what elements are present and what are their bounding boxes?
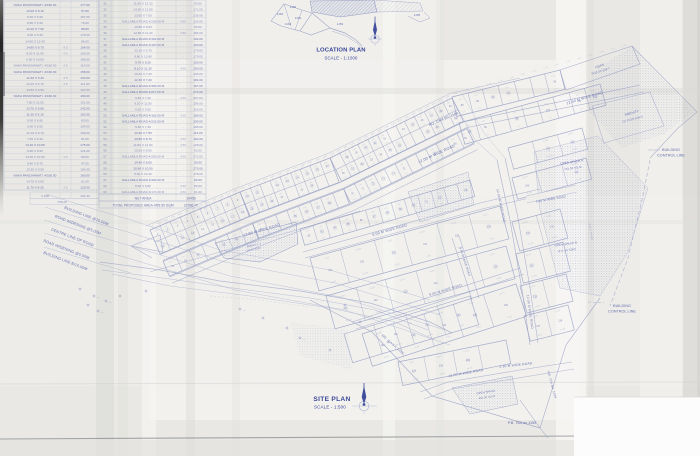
svg-text:8.90 X 6.80: 8.90 X 6.80 (135, 184, 151, 188)
svg-text:-: - (183, 43, 184, 47)
svg-text:124.00: 124.00 (193, 19, 203, 23)
svg-text:-: - (65, 3, 66, 7)
svg-text:103.00: 103.00 (80, 76, 90, 80)
svg-text:102: 102 (577, 100, 582, 103)
svg-text:54: 54 (103, 137, 107, 141)
svg-text:290.00: 290.00 (193, 119, 203, 123)
svg-text:49: 49 (103, 108, 107, 112)
svg-text:4.5: 4.5 (63, 45, 68, 49)
svg-text:13.40 X 7.50: 13.40 X 7.50 (134, 131, 152, 135)
svg-text:-: - (65, 113, 66, 117)
svg-text:LOCATION PLAN: LOCATION PLAN (316, 48, 365, 54)
svg-text:-: - (183, 90, 184, 94)
svg-text:-: - (65, 106, 66, 110)
svg-text:-: - (183, 172, 184, 176)
svg-text:-: - (183, 160, 184, 164)
svg-text:9.80 X 12.80: 9.80 X 12.80 (134, 55, 152, 59)
svg-text:175.00: 175.00 (80, 143, 90, 147)
svg-text:TOTAL PROPOSED AREA 4/59.50 SQ: TOTAL PROPOSED AREA 4/59.50 SQM (112, 204, 174, 208)
svg-text:NET AREA: NET AREA (135, 197, 152, 201)
svg-text:50: 50 (103, 113, 107, 117)
svg-text:47: 47 (103, 96, 107, 100)
svg-text:121.00: 121.00 (80, 100, 90, 104)
svg-text:-: - (65, 9, 66, 13)
svg-text:88.00: 88.00 (81, 27, 89, 31)
svg-text:171.00: 171.00 (193, 8, 203, 12)
svg-text:128.00: 128.00 (193, 143, 203, 147)
svg-text:114.00: 114.00 (193, 131, 203, 135)
svg-text:44: 44 (103, 78, 107, 82)
svg-text:188.00: 188.00 (80, 58, 90, 62)
svg-text:19456: 19456 (186, 197, 196, 201)
svg-text:196.00: 196.00 (193, 102, 203, 106)
svg-text:-: - (183, 149, 184, 153)
svg-text:126: 126 (504, 304, 509, 307)
svg-text:250.00: 250.00 (193, 66, 203, 70)
svg-text:13.80 X 8.70: 13.80 X 8.70 (134, 137, 152, 141)
svg-text:12.30 X 7.20: 12.30 X 7.20 (134, 78, 152, 82)
svg-text:89.00: 89.00 (81, 155, 89, 159)
svg-text:38: 38 (103, 43, 107, 47)
svg-text:6.20 X 11.50: 6.20 X 11.50 (26, 52, 44, 56)
svg-text:GALLAMLA ROAD 4/217.00 M: GALLAMLA ROAD 4/217.00 M (122, 90, 165, 94)
svg-text:-: - (183, 25, 184, 29)
svg-text:61.00: 61.00 (81, 180, 89, 184)
svg-text:119: 119 (394, 333, 398, 336)
svg-text:35: 35 (103, 25, 107, 29)
svg-text:1164: 1164 (295, 16, 302, 20)
svg-text:4.50: 4.50 (180, 113, 186, 117)
svg-text:12.20 X 6.70: 12.20 X 6.70 (26, 82, 44, 86)
svg-text:137: 137 (536, 325, 541, 328)
svg-text:100: 100 (546, 109, 551, 112)
svg-text:12.10 X 5.70: 12.10 X 5.70 (134, 49, 152, 53)
svg-text:32: 32 (103, 8, 107, 12)
svg-text:8.80 X 8.70: 8.80 X 8.70 (27, 161, 43, 165)
svg-text:114: 114 (434, 282, 438, 285)
svg-text:9.20 X 5.60: 9.20 X 5.60 (135, 108, 151, 112)
svg-text:9.20 X 11.80: 9.20 X 11.80 (134, 102, 152, 106)
svg-text:52: 52 (103, 125, 107, 129)
svg-text:65.00: 65.00 (194, 25, 202, 29)
svg-text:45: 45 (103, 84, 107, 88)
svg-text:-: - (183, 166, 184, 170)
svg-text:11.60 X 12.10: 11.60 X 12.10 (133, 2, 152, 6)
svg-text:11.70 X 8.20: 11.70 X 8.20 (26, 186, 44, 190)
svg-text:167.00: 167.00 (193, 84, 203, 88)
svg-text:4.50: 4.50 (180, 143, 186, 147)
svg-text:-: - (183, 102, 184, 106)
svg-text:4.50: 4.50 (180, 184, 186, 188)
svg-text:4.5: 4.5 (63, 186, 68, 190)
svg-text:GALLAMLA ROAD 4/400.00 M: GALLAMLA ROAD 4/400.00 M (122, 178, 165, 182)
svg-text:160.00: 160.00 (80, 174, 90, 178)
svg-text:63.00: 63.00 (194, 149, 202, 153)
svg-text:-: - (65, 27, 66, 31)
svg-text:159.00: 159.00 (80, 131, 90, 135)
svg-text:SCALE - 1:1000: SCALE - 1:1000 (324, 56, 358, 61)
svg-text:5.30 X 7.40: 5.30 X 7.40 (135, 125, 151, 129)
svg-text:187.00: 187.00 (80, 15, 90, 19)
svg-text:CONTROL LINE: CONTROL LINE (657, 154, 685, 158)
svg-text:48: 48 (103, 102, 107, 106)
svg-text:150.00: 150.00 (193, 61, 203, 65)
svg-text:4.5: 4.5 (63, 64, 68, 68)
svg-text:BUILDING: BUILDING (662, 148, 680, 152)
svg-text:119.00: 119.00 (80, 64, 90, 68)
svg-text:179.00: 179.00 (193, 55, 203, 59)
svg-text:108: 108 (455, 234, 460, 237)
svg-text:-: - (183, 108, 184, 112)
svg-text:39: 39 (103, 49, 107, 53)
svg-text:190.00: 190.00 (80, 94, 90, 98)
svg-text:-: - (183, 178, 184, 182)
svg-text:-: - (65, 125, 66, 129)
svg-text:46: 46 (103, 90, 107, 94)
svg-text:6.80 X 9.50: 6.80 X 9.50 (27, 149, 43, 153)
svg-text:267.00: 267.00 (193, 96, 203, 100)
svg-text:-: - (65, 58, 66, 62)
svg-text:60.00: 60.00 (194, 178, 202, 182)
svg-text:12.80 X 11.20: 12.80 X 11.20 (133, 31, 152, 35)
svg-text:140: 140 (525, 184, 530, 187)
svg-text:736.20: 736.20 (57, 200, 67, 204)
svg-text:-: - (65, 161, 66, 165)
svg-text:-: - (183, 119, 184, 123)
svg-text:13.20 X 10.80: 13.20 X 10.80 (25, 143, 45, 147)
svg-text:8.80 X 5.20: 8.80 X 5.20 (27, 21, 43, 25)
svg-text:-: - (65, 174, 66, 178)
svg-text:-: - (183, 8, 184, 12)
svg-text:106.00: 106.00 (193, 72, 203, 76)
svg-text:-: - (65, 149, 66, 153)
svg-text:132: 132 (550, 226, 555, 229)
svg-text:8.10 X 11.30: 8.10 X 11.30 (134, 66, 152, 70)
svg-text:105: 105 (360, 260, 365, 263)
svg-text:177.00: 177.00 (80, 3, 90, 7)
svg-text:-: - (65, 131, 66, 135)
svg-text:-: - (65, 21, 66, 25)
svg-text:-: - (183, 72, 184, 76)
svg-text:5.60 X 10.10: 5.60 X 10.10 (134, 172, 152, 176)
svg-text:-: - (65, 180, 66, 184)
svg-text:4.50: 4.50 (180, 66, 186, 70)
svg-text:152.00: 152.00 (80, 113, 90, 117)
svg-text:158.00: 158.00 (80, 70, 90, 74)
svg-text:11.80 X 12.60: 11.80 X 12.60 (133, 143, 152, 147)
svg-text:NAKA PANCHAWATI. 4/160.00: NAKA PANCHAWATI. 4/160.00 (14, 94, 57, 98)
svg-text:SCALE - 1:500: SCALE - 1:500 (314, 405, 346, 410)
svg-text:10.80 X 10.50: 10.80 X 10.50 (133, 166, 153, 170)
svg-text:-: - (183, 125, 184, 129)
svg-text:165.00: 165.00 (80, 52, 90, 56)
svg-text:4.5: 4.5 (63, 155, 68, 159)
svg-text:154.00: 154.00 (80, 167, 90, 171)
svg-text:GALLAMLA ROAD 4/162.00 M: GALLAMLA ROAD 4/162.00 M (122, 113, 165, 117)
svg-text:57.00: 57.00 (81, 9, 89, 13)
svg-text:GALLAMLA ROAD 4/197.00 M: GALLAMLA ROAD 4/197.00 M (122, 43, 165, 47)
svg-text:12.30 X 9.90: 12.30 X 9.90 (26, 167, 44, 171)
svg-text:104: 104 (328, 269, 333, 272)
svg-text:14.50 X 12.40: 14.50 X 12.40 (25, 39, 45, 43)
svg-text:-: - (65, 88, 66, 92)
svg-text:-: - (65, 137, 66, 141)
svg-text:12.30 X 5.40: 12.30 X 5.40 (26, 76, 44, 80)
svg-text:10.20 X 8.60: 10.20 X 8.60 (134, 149, 152, 153)
svg-text:111.00: 111.00 (80, 82, 89, 86)
svg-text:137.00: 137.00 (80, 88, 90, 92)
svg-text:81.00: 81.00 (81, 137, 89, 141)
svg-text:1159: 1159 (337, 22, 344, 26)
svg-text:59: 59 (103, 166, 107, 170)
svg-text:-: - (65, 15, 66, 19)
svg-text:90.00: 90.00 (194, 160, 202, 164)
svg-text:57: 57 (103, 155, 107, 159)
svg-text:275.00: 275.00 (193, 166, 203, 170)
svg-text:14.40 X 8.00: 14.40 X 8.00 (134, 160, 152, 164)
svg-text:61.00: 61.00 (194, 190, 202, 194)
svg-text:-: - (65, 70, 66, 74)
svg-text:62: 62 (103, 184, 107, 188)
svg-text:GALLAMLA ROAD 4/295.00 M: GALLAMLA ROAD 4/295.00 M (122, 155, 165, 159)
svg-text:5.00 X 6.90: 5.00 X 6.90 (27, 119, 43, 123)
svg-text:164.00: 164.00 (193, 137, 203, 141)
svg-text:7.50 X 6.40: 7.50 X 6.40 (27, 137, 43, 141)
svg-text:61: 61 (103, 178, 107, 182)
svg-text:13.70 X 5.80: 13.70 X 5.80 (26, 106, 44, 110)
svg-text:192.00: 192.00 (193, 37, 203, 41)
svg-text:4.50: 4.50 (180, 96, 186, 100)
svg-text:65.00: 65.00 (81, 119, 89, 123)
svg-text:33: 33 (103, 14, 107, 18)
svg-text:56: 56 (103, 149, 107, 153)
svg-text:GALLAMLA ROAD 4/208.00 M: GALLAMLA ROAD 4/208.00 M (122, 19, 165, 23)
svg-text:43: 43 (103, 72, 107, 76)
svg-text:112: 112 (374, 299, 378, 302)
svg-text:CONTROL LINE: CONTROL LINE (608, 310, 636, 314)
svg-text:89.00: 89.00 (194, 184, 202, 188)
svg-text:181.00: 181.00 (193, 78, 203, 82)
svg-text:131.44: 131.44 (80, 194, 90, 198)
svg-text:107: 107 (423, 243, 428, 246)
svg-text:13.00 X 8.10: 13.00 X 8.10 (26, 9, 44, 13)
svg-text:4.5: 4.5 (63, 52, 68, 56)
svg-text:235.00: 235.00 (193, 14, 203, 18)
svg-text:-: - (183, 49, 184, 53)
svg-text:124: 124 (442, 324, 447, 327)
svg-text:7.80 X 11.50: 7.80 X 11.50 (26, 100, 44, 104)
svg-text:154.00: 154.00 (80, 45, 90, 49)
svg-text:4.5: 4.5 (63, 82, 68, 86)
svg-text:60: 60 (103, 172, 107, 176)
svg-text:1165: 1165 (414, 13, 421, 17)
svg-text:47.00: 47.00 (81, 161, 89, 165)
svg-text:31: 31 (103, 2, 107, 6)
svg-text:41: 41 (103, 61, 107, 65)
svg-text:128: 128 (439, 365, 444, 368)
svg-text:13.30 X 10.90: 13.30 X 10.90 (25, 155, 45, 159)
svg-text:6.90 X 5.30: 6.90 X 5.30 (27, 33, 43, 37)
svg-text:10.40 X 7.20: 10.40 X 7.20 (134, 72, 152, 76)
svg-text:76.00: 76.00 (81, 21, 89, 25)
svg-text:NAKA PANCHAWATI. 4/160.00: NAKA PANCHAWATI. 4/160.00 (14, 174, 57, 178)
svg-text:5.30 X 6.90: 5.30 X 6.90 (27, 15, 43, 19)
svg-text:-: - (183, 131, 184, 135)
svg-text:-: - (65, 33, 66, 37)
svg-text:BUILDING: BUILDING (613, 304, 631, 308)
svg-text:12.10 X 6.70: 12.10 X 6.70 (26, 131, 44, 135)
svg-text:4.50: 4.50 (180, 19, 186, 23)
svg-text:13.00 X 7.00: 13.00 X 7.00 (134, 14, 152, 18)
svg-text:166.00: 166.00 (193, 113, 203, 117)
svg-text:GALLAMLA ROAD 4/161.00 M: GALLAMLA ROAD 4/161.00 M (122, 37, 165, 41)
svg-text:131.00: 131.00 (80, 149, 90, 153)
svg-text:14.80 X 9.70: 14.80 X 9.70 (26, 45, 44, 49)
svg-text:-: - (183, 61, 184, 65)
svg-text:5.40 X 7.20: 5.40 X 7.20 (135, 96, 151, 100)
svg-text:-: - (65, 119, 66, 123)
svg-text:142.00: 142.00 (80, 106, 90, 110)
svg-text:42: 42 (103, 66, 107, 70)
svg-text:NAKA PANCHAWATI. 4/160.00: NAKA PANCHAWATI. 4/160.00 (14, 64, 57, 68)
svg-text:-: - (65, 167, 66, 171)
svg-text:-: - (65, 94, 66, 98)
svg-text:NAKA PANCHAWATI. 4/160.00: NAKA PANCHAWATI. 4/160.00 (14, 70, 57, 74)
svg-text:176.00: 176.00 (80, 33, 90, 37)
svg-text:SITE PLAN: SITE PLAN (313, 396, 350, 403)
svg-text:-: - (183, 37, 184, 41)
svg-text:93.00: 93.00 (194, 2, 202, 6)
svg-text:P.B. 764 no 1159: P.B. 764 no 1159 (508, 421, 537, 425)
svg-text:1166: 1166 (290, 5, 297, 9)
svg-text:14.20 X 12.90: 14.20 X 12.90 (133, 8, 153, 12)
svg-text:13.60 X 9.50: 13.60 X 9.50 (26, 88, 44, 92)
svg-text:179.00: 179.00 (193, 49, 203, 53)
svg-text:9.70 X 8.20: 9.70 X 8.20 (135, 61, 151, 65)
svg-text:11.30 X 5.10: 11.30 X 5.10 (26, 113, 44, 117)
svg-text:138: 138 (558, 319, 563, 322)
svg-text:86.00: 86.00 (81, 39, 89, 43)
svg-text:-: - (65, 100, 66, 104)
svg-text:185.00: 185.00 (193, 125, 203, 129)
svg-text:53: 53 (103, 131, 107, 135)
svg-text:40: 40 (103, 55, 107, 59)
svg-text:-: - (183, 78, 184, 82)
svg-text:4.50: 4.50 (180, 155, 186, 159)
svg-text:-: - (183, 14, 184, 18)
svg-text:10.80 X 9.60: 10.80 X 9.60 (134, 25, 152, 29)
svg-text:37: 37 (103, 37, 107, 41)
svg-text:13.10 X 7.90: 13.10 X 7.90 (26, 27, 44, 31)
svg-text:4.50: 4.50 (180, 137, 186, 141)
svg-text:125.00: 125.00 (80, 186, 90, 190)
svg-text:-: - (65, 143, 66, 147)
svg-text:6.50 X 10.50: 6.50 X 10.50 (26, 58, 44, 62)
svg-text:34: 34 (103, 19, 107, 23)
svg-text:58: 58 (103, 160, 107, 164)
svg-text:4.50: 4.50 (180, 190, 186, 194)
svg-text:1162: 1162 (285, 22, 292, 26)
svg-text:4.5: 4.5 (63, 76, 68, 80)
svg-text:GALLAMLA ROAD 4/383.00 M: GALLAMLA ROAD 4/383.00 M (122, 84, 165, 88)
svg-text:55: 55 (103, 143, 107, 147)
svg-text:-: - (183, 2, 184, 6)
svg-text:51: 51 (103, 119, 107, 123)
svg-text:178.00: 178.00 (193, 172, 203, 176)
svg-text:14.70 X 5.50: 14.70 X 5.50 (26, 180, 44, 184)
svg-text:274.00: 274.00 (193, 90, 203, 94)
svg-text:-: - (183, 55, 184, 59)
svg-text:-: - (183, 84, 184, 88)
svg-text:36: 36 (103, 31, 107, 35)
svg-text:4.50: 4.50 (180, 31, 186, 35)
svg-text:1163: 1163 (277, 12, 284, 16)
svg-text:GALLAMLA ROAD 4/174.00 M: GALLAMLA ROAD 4/174.00 M (122, 190, 165, 194)
svg-text:6.90 X 8.60: 6.90 X 8.60 (27, 125, 43, 129)
svg-text:118.00: 118.00 (193, 108, 203, 112)
svg-text:122: 122 (381, 344, 386, 347)
svg-text:184.00: 184.00 (193, 31, 203, 35)
svg-text:120.00: 120.00 (193, 43, 203, 47)
svg-text:104.00: 104.00 (80, 125, 90, 129)
svg-text:-: - (65, 39, 66, 43)
svg-text:272.00: 272.00 (193, 155, 203, 159)
svg-text:NAKA PANCHAWATI. 4/160.00: NAKA PANCHAWATI. 4/160.00 (14, 3, 57, 7)
svg-text:63: 63 (103, 190, 107, 194)
svg-text:GALLAMLA ROAD 4/222.00 M: GALLAMLA ROAD 4/222.00 M (122, 119, 165, 123)
